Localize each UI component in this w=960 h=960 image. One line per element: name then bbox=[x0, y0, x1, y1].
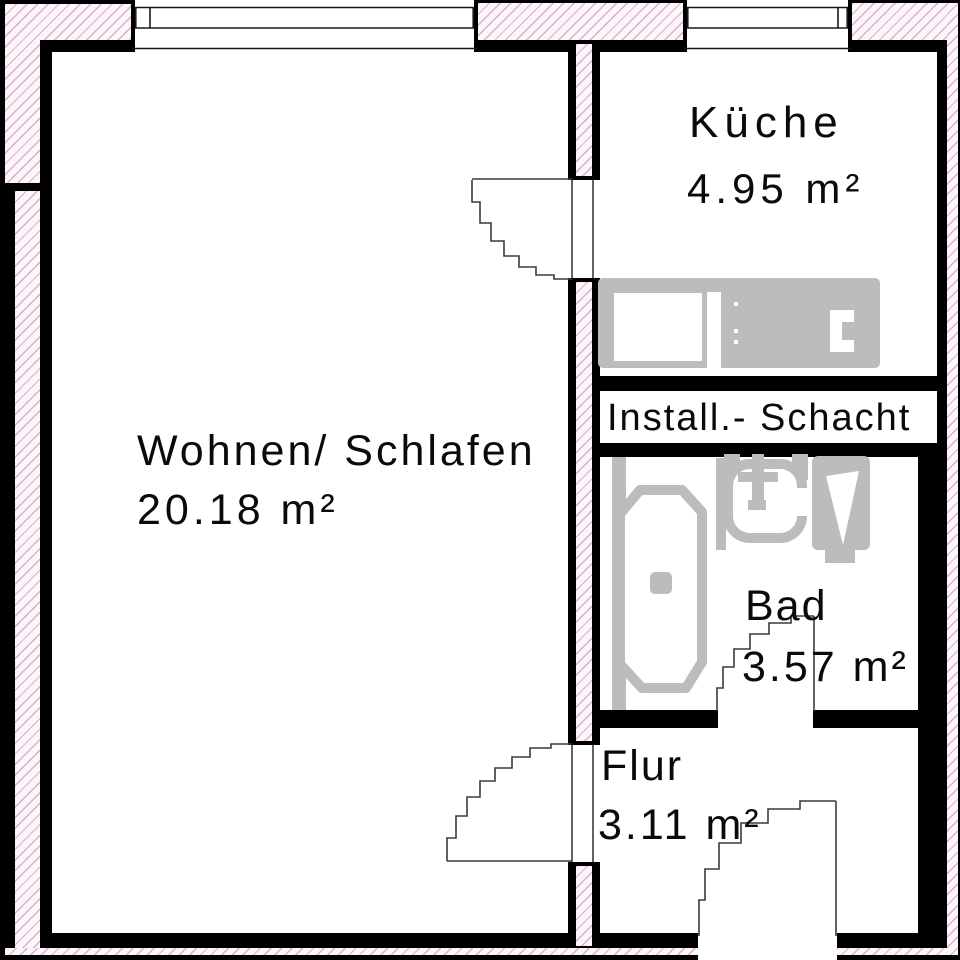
door-kueche bbox=[472, 179, 593, 279]
toilet bbox=[812, 456, 870, 563]
room-label-install-schacht: Install.- Schacht bbox=[607, 399, 911, 437]
door-flur-wohnen-arc bbox=[447, 744, 572, 861]
kitchen-counter bbox=[598, 278, 880, 368]
window-kueche bbox=[684, 7, 851, 49]
door-kueche-arc bbox=[472, 180, 572, 279]
window-wohnen bbox=[132, 7, 477, 49]
washbasin bbox=[716, 454, 808, 550]
room-label-bad: Bad bbox=[745, 585, 828, 628]
room-label-wohnen-schlafen: Wohnen/ Schlafen bbox=[137, 430, 536, 473]
room-label-kueche: Küche bbox=[689, 101, 844, 145]
bathtub bbox=[612, 457, 702, 710]
floor-plan: Wohnen/ Schlafen 20.18 m² Küche 4.95 m² … bbox=[0, 0, 960, 960]
door-flur-wohnen bbox=[447, 744, 593, 862]
room-area-bad: 3.57 m² bbox=[742, 646, 909, 689]
kitchen-sink bbox=[614, 293, 702, 361]
room-area-kueche: 4.95 m² bbox=[687, 168, 864, 210]
room-area-wohnen-schlafen: 20.18 m² bbox=[137, 489, 339, 532]
room-label-flur: Flur bbox=[601, 745, 683, 788]
room-area-flur: 3.11 m² bbox=[598, 804, 762, 847]
